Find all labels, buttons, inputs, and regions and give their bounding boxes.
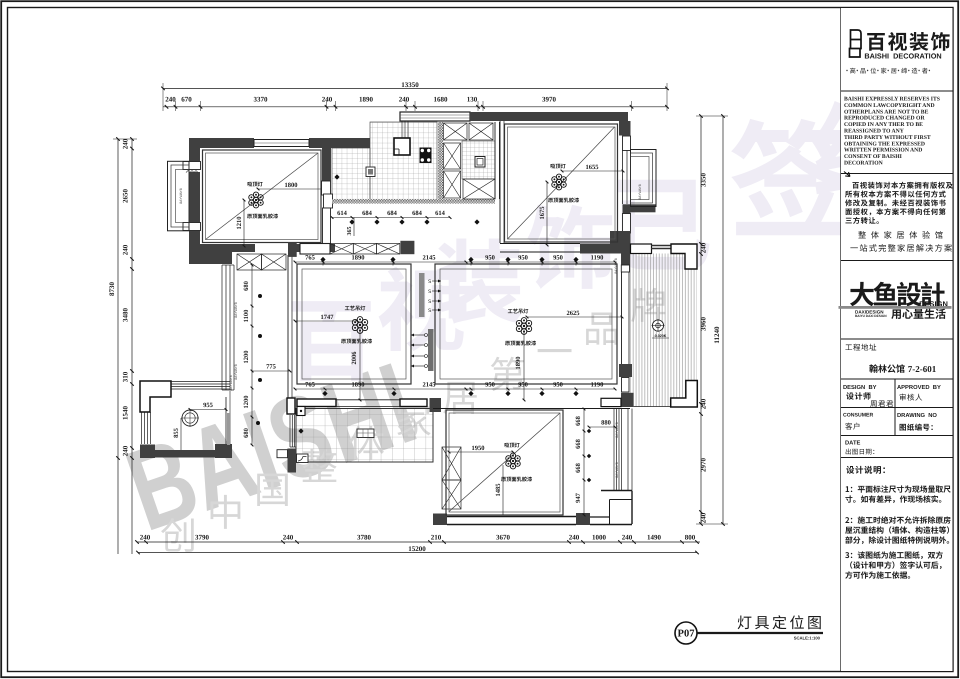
svg-text:THIRD PARTY WITHOUT FIRST: THIRD PARTY WITHOUT FIRST (844, 135, 931, 141)
svg-text:240: 240 (700, 512, 708, 523)
svg-text:3790: 3790 (195, 534, 210, 542)
svg-text:COMMON LAWCOPYRIGHT AND: COMMON LAWCOPYRIGHT AND (844, 103, 935, 109)
svg-text:1680: 1680 (434, 96, 449, 104)
svg-text:1190: 1190 (591, 382, 604, 389)
svg-text:240: 240 (122, 244, 130, 255)
svg-text:8AYWAY8: 8AYWAY8 (638, 184, 642, 200)
svg-text:1890: 1890 (352, 255, 365, 262)
svg-text:1490: 1490 (647, 534, 662, 542)
svg-text:3970: 3970 (542, 96, 557, 104)
svg-text:955: 955 (203, 402, 214, 409)
svg-text:1200: 1200 (243, 396, 250, 409)
svg-text:684: 684 (362, 210, 373, 217)
svg-text:3370: 3370 (254, 96, 269, 104)
svg-text:2006: 2006 (351, 351, 358, 365)
svg-text:SCALE:1:100: SCALE:1:100 (794, 636, 821, 641)
svg-text:CONSUMER: CONSUMER (843, 413, 874, 419)
svg-text:REASSIGNED TO ANY: REASSIGNED TO ANY (844, 129, 904, 135)
svg-text:OBTAINING THE EXPRESSED: OBTAINING THE EXPRESSED (844, 141, 925, 147)
svg-text:DRAWING NO: DRAWING NO (897, 412, 937, 419)
svg-text:OTHERPLANS ARE NOT TO BE: OTHERPLANS ARE NOT TO BE (844, 109, 929, 115)
svg-text:1890: 1890 (359, 96, 374, 104)
svg-text:3960: 3960 (700, 317, 708, 332)
svg-text:P07: P07 (678, 629, 695, 640)
svg-text:614: 614 (337, 210, 348, 217)
svg-text:13350: 13350 (401, 81, 419, 89)
svg-text:3350: 3350 (700, 173, 708, 188)
svg-text:668: 668 (575, 415, 582, 426)
svg-text:1540: 1540 (122, 406, 130, 421)
svg-text:DATE: DATE (845, 441, 860, 447)
svg-text:2970: 2970 (700, 458, 708, 473)
svg-text:1100: 1100 (243, 310, 250, 323)
svg-text:800: 800 (685, 534, 696, 542)
svg-text:310: 310 (122, 371, 130, 382)
svg-text:8AYWAY8: 8AYWAY8 (615, 462, 619, 478)
svg-text:680: 680 (243, 281, 250, 291)
svg-text:7-2-601: 7-2-601 (908, 364, 937, 374)
svg-text:1485: 1485 (495, 483, 502, 497)
svg-text:8AYWAY8: 8AYWAY8 (234, 364, 238, 380)
svg-text:1950: 1950 (472, 445, 485, 452)
svg-text:670: 670 (181, 96, 192, 104)
svg-text:BAISHI DECORATION: BAISHI DECORATION (864, 52, 941, 61)
svg-text:2650: 2650 (122, 189, 130, 204)
svg-text:765: 765 (305, 255, 316, 262)
svg-text:668: 668 (575, 438, 582, 449)
svg-text:950: 950 (553, 255, 563, 262)
svg-text:COPIED IN ANY THER TO BE: COPIED IN ANY THER TO BE (844, 122, 923, 128)
svg-text:1890: 1890 (352, 382, 365, 389)
svg-text:DECORATION: DECORATION (844, 161, 884, 167)
svg-text:1747: 1747 (321, 314, 335, 321)
svg-text:3670: 3670 (496, 534, 511, 542)
svg-text:WRITTEN PERMISSION AND: WRITTEN PERMISSION AND (844, 148, 922, 154)
svg-text:765: 765 (305, 382, 316, 389)
svg-text:1000: 1000 (592, 534, 607, 542)
svg-text:BAIYU DAXI DESIGN: BAIYU DAXI DESIGN (855, 314, 887, 318)
svg-text:1190: 1190 (591, 255, 604, 262)
svg-text:APPROVED BY: APPROVED BY (897, 384, 941, 391)
svg-text:950: 950 (485, 382, 495, 389)
svg-text:1675: 1675 (539, 206, 546, 220)
svg-text:365: 365 (347, 227, 353, 236)
svg-text:240: 240 (569, 534, 580, 542)
svg-text:680: 680 (243, 428, 250, 438)
svg-text:130: 130 (467, 96, 478, 104)
svg-text:8AYWAY8: 8AYWAY8 (615, 422, 619, 438)
svg-text:947: 947 (575, 492, 582, 503)
svg-text:8730: 8730 (108, 282, 116, 297)
svg-text:1800: 1800 (285, 182, 298, 189)
svg-text:DESIGN BY: DESIGN BY (843, 384, 877, 391)
svg-text:240: 240 (140, 534, 151, 542)
svg-text:2145: 2145 (423, 382, 437, 389)
svg-text:2625: 2625 (567, 310, 581, 317)
svg-text:1210: 1210 (236, 217, 243, 230)
svg-text:1655: 1655 (586, 164, 600, 171)
svg-text:240: 240 (165, 96, 176, 104)
svg-text:REPRODUCED CHANGED OR: REPRODUCED CHANGED OR (844, 116, 925, 122)
svg-text:240: 240 (322, 96, 333, 104)
svg-text:775: 775 (266, 364, 277, 371)
svg-text:950: 950 (553, 382, 563, 389)
svg-text:1890: 1890 (515, 357, 522, 370)
svg-text:240: 240 (700, 398, 708, 409)
svg-text:15200: 15200 (408, 545, 426, 553)
svg-text:1200: 1200 (243, 351, 250, 364)
svg-text:880: 880 (601, 420, 611, 427)
svg-text:11240: 11240 (713, 326, 721, 344)
svg-text:240: 240 (399, 96, 410, 104)
svg-text:8AYWAY8: 8AYWAY8 (229, 375, 233, 391)
svg-text:BAISHI EXPRESSLY RESERVES ITS: BAISHI EXPRESSLY RESERVES ITS (844, 97, 940, 103)
svg-text:855: 855 (173, 427, 180, 438)
svg-text:668: 668 (575, 462, 582, 473)
svg-text:-0.020K: -0.020K (654, 334, 667, 338)
svg-text:950: 950 (518, 382, 528, 389)
svg-text:614: 614 (435, 210, 446, 217)
svg-text:3480: 3480 (122, 308, 130, 323)
svg-text:210: 210 (431, 534, 442, 542)
svg-text:8AYWAY8: 8AYWAY8 (179, 188, 183, 204)
svg-text:CONSENT OF BAISHI: CONSENT OF BAISHI (844, 154, 903, 160)
svg-text:240: 240 (700, 242, 708, 253)
svg-text:8AYWAY8: 8AYWAY8 (614, 258, 618, 274)
svg-text:3780: 3780 (357, 534, 372, 542)
svg-text:240: 240 (622, 534, 633, 542)
svg-text:950: 950 (485, 255, 495, 262)
svg-text:240: 240 (122, 445, 130, 456)
svg-text:684: 684 (412, 210, 423, 217)
svg-text:240: 240 (122, 138, 130, 149)
svg-text:240: 240 (283, 534, 294, 542)
svg-text:2145: 2145 (423, 255, 437, 262)
svg-text:8AYWAY8: 8AYWAY8 (234, 302, 238, 318)
svg-text:684: 684 (387, 210, 398, 217)
svg-text:950: 950 (518, 255, 528, 262)
